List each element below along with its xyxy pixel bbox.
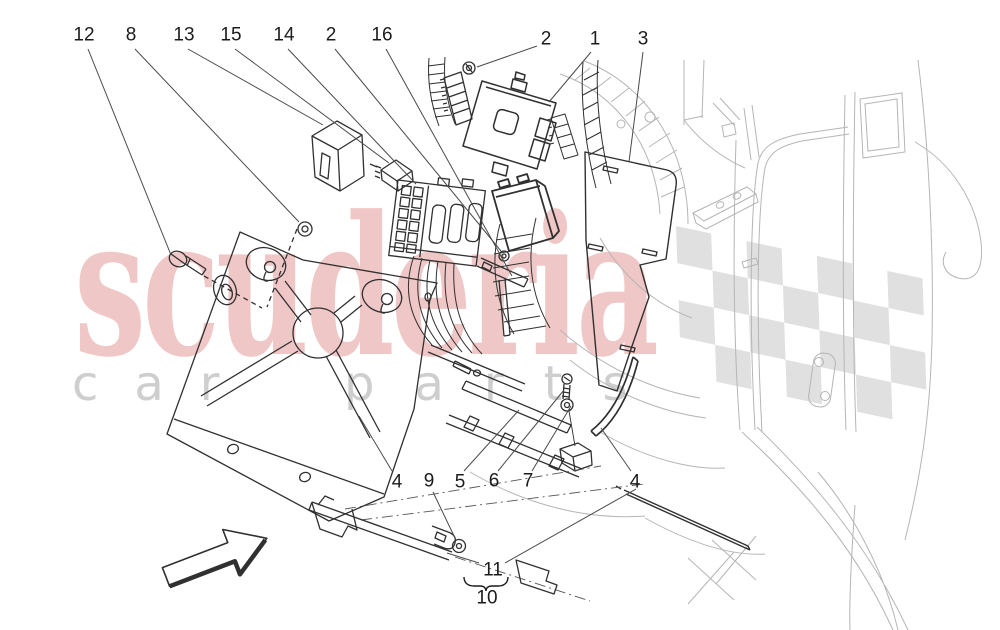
bracket-two-holes bbox=[693, 187, 758, 229]
ecu-emblem bbox=[492, 108, 519, 135]
callout-leader-line bbox=[235, 49, 389, 163]
callout-leader-line bbox=[601, 428, 631, 471]
callout-leader-line bbox=[477, 46, 537, 67]
strip-hook-end bbox=[432, 526, 455, 549]
wheel-arch-lines bbox=[742, 427, 908, 630]
harness-gray-loop bbox=[915, 142, 982, 279]
watermark-tagline-left: car bbox=[72, 356, 256, 412]
body-hole bbox=[617, 120, 625, 128]
cross-brace-lines bbox=[688, 536, 756, 604]
checker-tile bbox=[783, 286, 820, 331]
callout-label-9: 9 bbox=[424, 471, 435, 492]
tab-hole bbox=[821, 392, 830, 401]
callout-leader-line bbox=[629, 52, 643, 162]
checker-tile bbox=[749, 315, 786, 360]
callout-leader-line bbox=[188, 49, 323, 125]
callout-label-13: 13 bbox=[173, 25, 194, 46]
checker-tile bbox=[713, 271, 750, 316]
checker-tile bbox=[676, 226, 713, 271]
callout-label-16: 16 bbox=[371, 25, 392, 46]
checkered-flag-watermark bbox=[676, 226, 928, 427]
arrow-outline bbox=[157, 516, 275, 600]
diagram-svg: scuderia car parts bbox=[0, 0, 1000, 630]
callout-label-4: 4 bbox=[392, 472, 403, 493]
rod-part4 bbox=[616, 486, 750, 550]
plate-fold-and-tab bbox=[174, 419, 384, 537]
arrow-shading bbox=[166, 540, 273, 599]
callout-label-6: 6 bbox=[489, 471, 500, 492]
screw-part2 bbox=[463, 62, 475, 74]
callout-label-8: 8 bbox=[126, 25, 137, 46]
assembly-group-brace: 10 bbox=[464, 577, 508, 609]
callout-label-11: 11 bbox=[483, 560, 503, 581]
checker-tile bbox=[853, 301, 890, 346]
washer-part9-inner bbox=[457, 544, 462, 549]
callout-label-2: 2 bbox=[541, 29, 552, 50]
checker-tile bbox=[887, 271, 924, 316]
checker-tile bbox=[890, 345, 927, 390]
window-panel bbox=[860, 93, 905, 158]
callout-label-5: 5 bbox=[455, 472, 466, 493]
callout-leader-line bbox=[505, 489, 636, 563]
checker-tile bbox=[856, 375, 893, 420]
direction-arrow bbox=[157, 516, 275, 600]
checker-tile bbox=[817, 256, 854, 301]
callout-label-1: 1 bbox=[590, 29, 601, 50]
pillar-top-lines bbox=[684, 60, 736, 137]
callout-label-3: 3 bbox=[638, 29, 649, 50]
strip-lines bbox=[309, 496, 452, 560]
checker-tile bbox=[786, 360, 823, 405]
assembly-group-label: 10 bbox=[476, 588, 497, 609]
callout-label-14: 14 bbox=[273, 25, 295, 46]
callout-label-15: 15 bbox=[220, 25, 241, 46]
callout-label-2: 2 bbox=[326, 25, 337, 46]
ecu-part1 bbox=[463, 72, 556, 176]
parts-diagram-canvas: scuderia car parts bbox=[0, 0, 1000, 630]
callout-label-12: 12 bbox=[73, 25, 94, 46]
callout-label-7: 7 bbox=[523, 471, 534, 492]
body-hole bbox=[645, 112, 655, 122]
flange-hole bbox=[298, 471, 311, 483]
checker-tile bbox=[715, 345, 752, 390]
lower-bracket bbox=[516, 560, 557, 594]
flange-hole bbox=[226, 443, 239, 455]
checker-tile bbox=[819, 330, 856, 375]
checker-tile bbox=[679, 300, 716, 345]
callout-leader-line bbox=[447, 553, 479, 563]
